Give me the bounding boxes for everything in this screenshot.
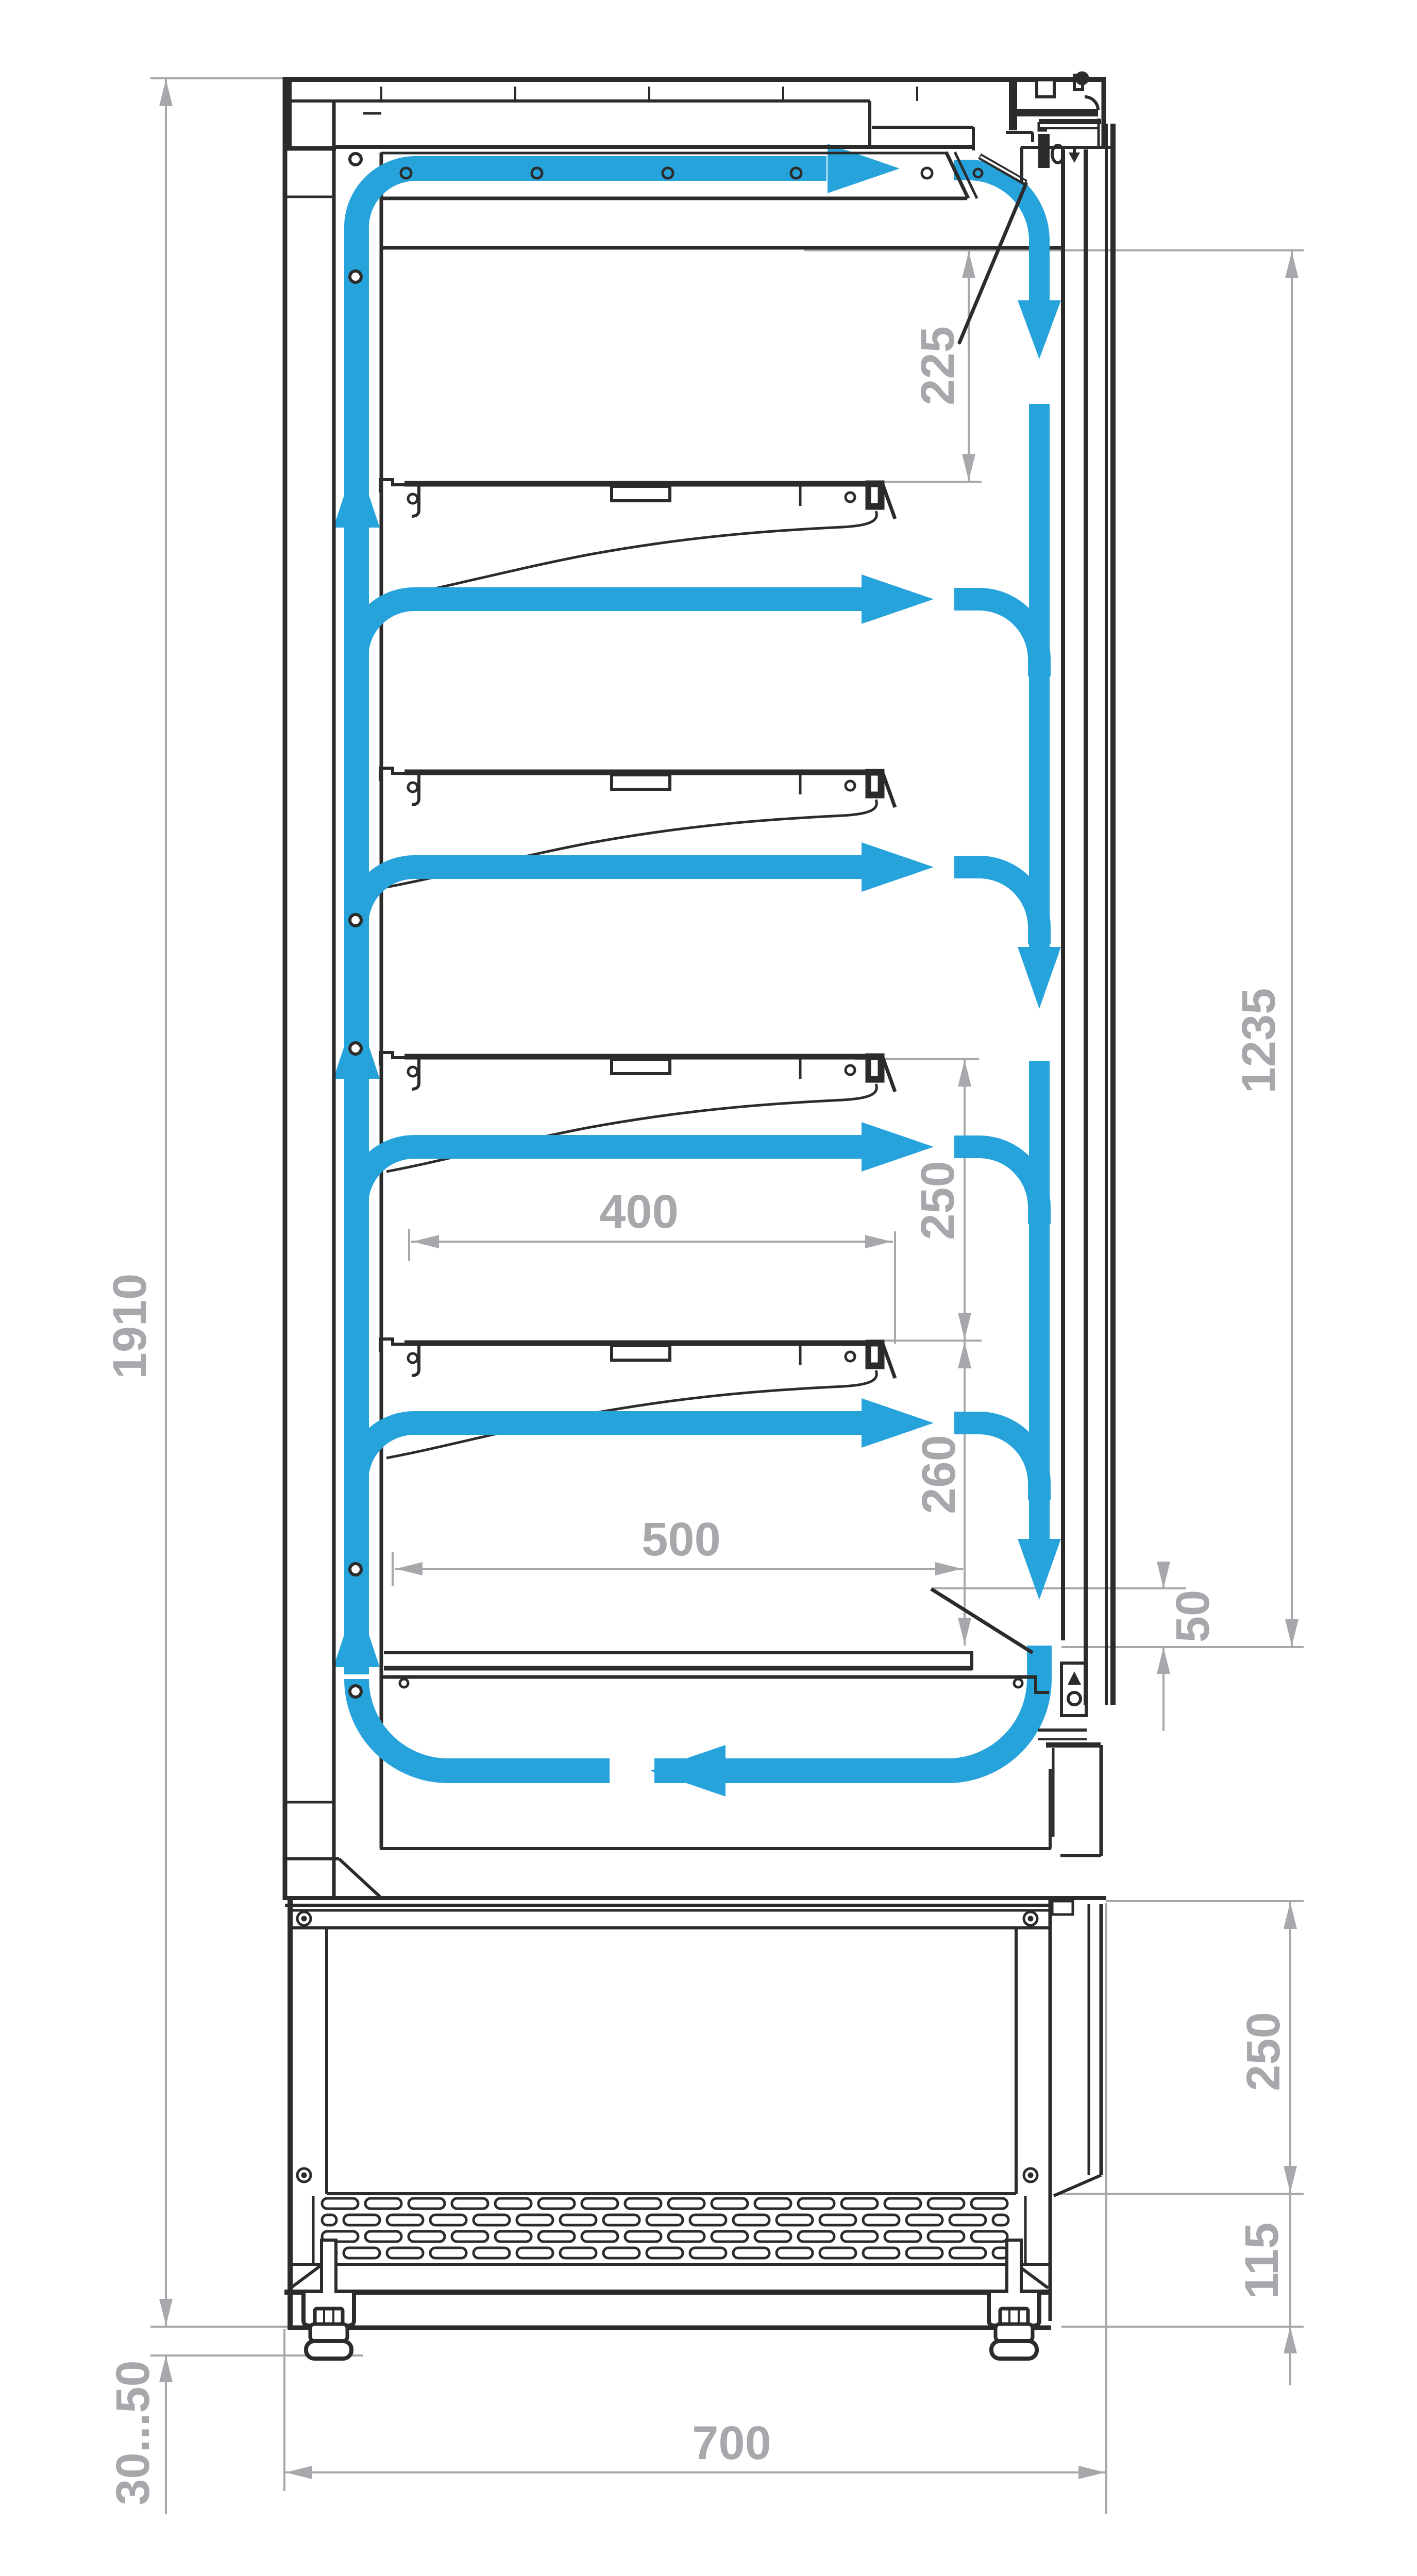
svg-text:250: 250 xyxy=(912,1161,964,1240)
svg-text:115: 115 xyxy=(1236,2223,1288,2299)
svg-text:225: 225 xyxy=(912,326,964,405)
svg-text:260: 260 xyxy=(913,1435,965,1514)
svg-text:50: 50 xyxy=(1167,1590,1219,1642)
svg-text:1235: 1235 xyxy=(1233,988,1285,1094)
svg-text:500: 500 xyxy=(642,1513,721,1566)
svg-text:400: 400 xyxy=(599,1185,679,1238)
svg-text:30...50: 30...50 xyxy=(107,2360,159,2505)
svg-text:1910: 1910 xyxy=(104,1274,156,1379)
svg-text:250: 250 xyxy=(1237,2012,1290,2091)
svg-text:700: 700 xyxy=(692,2417,771,2469)
